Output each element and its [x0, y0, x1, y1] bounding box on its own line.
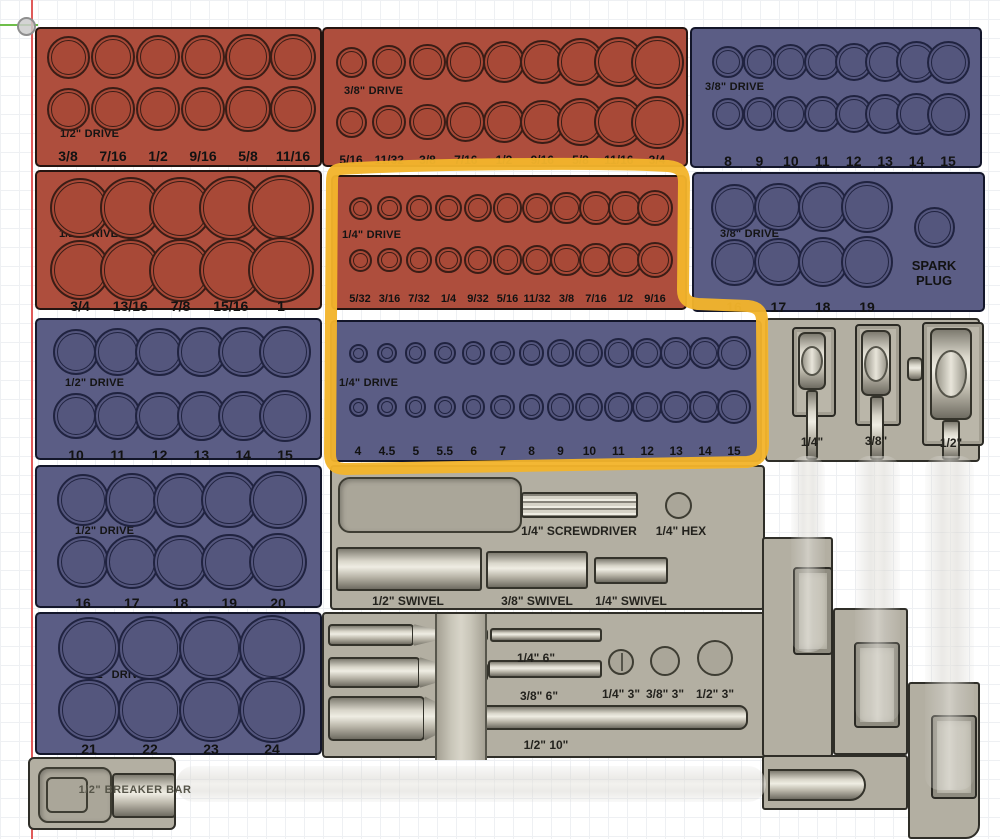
panel-three-eighth-drive-metric[interactable]: 3/8" DRIVE89101112131415 [690, 27, 982, 168]
socket-size-label: 5/16 [497, 293, 518, 305]
socket-hole [239, 615, 305, 681]
drive-size-label: 1/4" DRIVE [339, 377, 398, 389]
socket-hole [153, 535, 208, 590]
socket-hole [259, 390, 311, 442]
socket-size-label: 4 [355, 444, 362, 458]
socket-size-label: 20 [270, 595, 286, 611]
socket-size-label: 5.5 [436, 444, 453, 458]
socket-size-label: 1/2 [496, 153, 513, 167]
breaker-bar-ghost-shaft [176, 766, 766, 802]
socket-hole [349, 249, 372, 272]
socket-hole [841, 236, 893, 288]
socket-hole [717, 336, 751, 370]
panel-half-drive-sae-small[interactable]: 1/2" DRIVE3/87/161/29/165/811/16 [35, 27, 322, 167]
ratchet-handle-ghost [925, 456, 974, 790]
socket-hole [519, 340, 545, 366]
extension-rod [490, 628, 602, 642]
socket-size-label: 1 [277, 298, 285, 314]
socket-hole [462, 341, 486, 365]
extension-label: 3/8" 6" [520, 689, 558, 703]
socket-hole [550, 244, 582, 276]
socket-hole [409, 104, 446, 141]
socket-size-label: 13 [669, 444, 682, 458]
socket-size-label: 3/8 [559, 293, 574, 305]
drive-size-label: 3/8" DRIVE [344, 85, 403, 97]
socket-hole [464, 194, 492, 222]
ratchet-stem [806, 390, 818, 460]
socket-size-label: 23 [203, 741, 219, 757]
half-extension[interactable] [328, 696, 425, 741]
socket-hole [270, 86, 316, 132]
socket-hole [522, 193, 553, 224]
socket-size-label: 5/16 [339, 153, 362, 167]
drive-stub [907, 357, 923, 381]
socket-size-label: 18 [173, 595, 189, 611]
socket-size-label: 5/32 [349, 293, 370, 305]
socket-hole [118, 678, 181, 741]
socket-hole [47, 36, 90, 79]
socket-size-label: 14 [235, 447, 251, 463]
ratchet-tray[interactable]: 1/4" 3/8" 1/2" [765, 318, 980, 462]
socket-hole [406, 247, 432, 273]
socket-size-label: 11/32 [375, 153, 404, 167]
socket-hole [105, 535, 159, 589]
short-extension-label: 3/8" 3" [646, 687, 684, 701]
socket-hole [248, 237, 314, 303]
socket-size-label: 1/2 [148, 148, 167, 164]
empty-pocket [338, 477, 522, 533]
socket-hole [372, 45, 406, 79]
socket-hole [225, 86, 270, 131]
socket-hole [406, 195, 432, 221]
socket-hole [483, 41, 525, 83]
socket-hole [405, 342, 426, 363]
short-extension-label: 1/4" 3" [602, 687, 640, 701]
socket-size-label: 19 [221, 595, 237, 611]
socket-hole [248, 175, 314, 241]
short-extension-hole [697, 640, 733, 676]
socket-size-label: 7/16 [585, 293, 606, 305]
swivel-label: 1/2" SWIVEL [372, 594, 444, 608]
panel-half-drive-metric-small[interactable]: 1/2" DRIVE101112131415 [35, 318, 322, 460]
socket-hole [349, 398, 368, 417]
socket-hole [434, 396, 456, 418]
socket-hole [754, 183, 803, 232]
hex-bit-hole [665, 492, 692, 519]
drive-size-label: 3/8" DRIVE [705, 81, 764, 93]
ratchet-label: 1/4" [801, 435, 823, 449]
ratchet-handle-ghost [855, 456, 900, 722]
socket-size-label: 14 [909, 153, 925, 169]
socket-size-label: 11 [110, 447, 125, 463]
socket-hole [522, 245, 553, 276]
socket-hole [637, 190, 673, 226]
socket-size-label: 9/16 [531, 153, 554, 167]
socket-hole [446, 42, 485, 81]
socket-size-label: 12 [846, 153, 862, 169]
socket-hole [490, 395, 515, 420]
socket-size-label: 7/32 [408, 293, 429, 305]
extension-rod [476, 705, 748, 730]
socket-hole [660, 391, 692, 423]
short-extension-label: 1/2" 3" [696, 687, 734, 701]
socket-hole [259, 326, 311, 378]
socket-size-label: 11/16 [604, 153, 633, 167]
socket-hole [464, 246, 492, 274]
breaker-end-block[interactable] [762, 755, 908, 810]
socket-size-label: 16 [75, 595, 91, 611]
socket-hole [490, 341, 515, 366]
screwdriver-label: 1/4" SCREWDRIVER [521, 524, 637, 538]
quarter-extension[interactable] [328, 624, 414, 646]
socket-hole [94, 392, 141, 439]
socket-size-label: 8 [528, 444, 535, 458]
short-extension-hole [608, 649, 634, 675]
socket-hole [435, 195, 462, 222]
half-swivel-tool[interactable] [336, 547, 482, 591]
screwdriver-tool[interactable] [521, 492, 638, 518]
socket-hole [47, 88, 90, 131]
socket-size-label: 11 [612, 444, 625, 458]
socket-size-label: 7/16 [99, 148, 126, 164]
socket-hole [57, 536, 109, 588]
socket-size-label: 1/2 [618, 293, 633, 305]
socket-size-label: 21 [81, 741, 97, 757]
socket-hole [631, 36, 684, 89]
socket-hole [637, 242, 673, 278]
socket-hole [53, 329, 99, 375]
origin-marker [17, 17, 36, 36]
socket-hole [58, 679, 120, 741]
socket-size-label: 3/16 [379, 293, 400, 305]
drive-size-label: 1/2" DRIVE [65, 377, 124, 389]
swivel-label: 3/8" SWIVEL [501, 594, 573, 608]
socket-size-label: 11 [815, 153, 830, 169]
socket-hole [462, 395, 486, 419]
socket-hole [841, 181, 893, 233]
socket-size-label: 10 [583, 444, 596, 458]
socket-size-label: 12 [641, 444, 654, 458]
y-axis-line [31, 0, 33, 839]
socket-hole [434, 342, 456, 364]
small-tools-tray[interactable]: 1/4" SCREWDRIVER 1/4" HEX 1/2" SWIVEL 3/… [330, 465, 765, 610]
quarter-swivel-tool[interactable] [594, 557, 668, 584]
breaker-bar-end [768, 769, 866, 801]
socket-hole [53, 393, 99, 439]
socket-hole [181, 35, 226, 80]
spark-plug-label: SPARK [912, 258, 957, 273]
extension-label: 1/4" 6" [517, 651, 555, 665]
socket-size-label: 11/32 [524, 293, 551, 305]
socket-hole [712, 98, 744, 130]
panel-half-drive-metric-mid[interactable]: 1/2" DRIVE1617181920 [35, 465, 322, 608]
panel-half-drive-metric-large[interactable]: 1/2" DRIVE21222324 [35, 612, 322, 755]
socket-hole [405, 396, 426, 417]
socket-hole [336, 107, 367, 138]
socket-hole [136, 35, 180, 79]
socket-hole [349, 344, 368, 363]
socket-size-label: 9/16 [644, 293, 665, 305]
socket-hole [136, 87, 180, 131]
socket-hole [711, 184, 758, 231]
socket-hole [91, 35, 135, 79]
socket-hole [377, 343, 397, 363]
socket-size-label: 3/4 [649, 153, 666, 167]
three-eighth-swivel-tool[interactable] [486, 551, 588, 589]
socket-size-label: 11/16 [276, 148, 310, 164]
socket-hole [377, 248, 401, 272]
socket-size-label: 17 [771, 299, 787, 315]
socket-hole [377, 196, 401, 220]
socket-size-label: 8 [724, 153, 732, 169]
socket-hole [435, 247, 462, 274]
socket-hole [94, 328, 141, 375]
socket-size-label: 3/8 [419, 153, 436, 167]
panel-quarter-drive-metric[interactable]: 1/4" DRIVE44.555.56789101112131415 [330, 320, 762, 462]
socket-size-label: 9 [557, 444, 564, 458]
ratchet-head-ring [801, 346, 823, 376]
socket-size-label: 13 [194, 447, 210, 463]
short-extension-hole [650, 646, 680, 676]
socket-hole [181, 87, 226, 132]
socket-size-label: 17 [124, 595, 140, 611]
socket-hole [372, 105, 406, 139]
socket-hole [632, 392, 663, 423]
socket-size-label: 10 [783, 153, 799, 169]
three-eighth-extension[interactable] [328, 657, 420, 688]
extension-tray[interactable]: 1/4" 6" 3/8" 6" 1/2" 10" 1/4" 3" 3/8" 3"… [322, 612, 768, 758]
socket-size-label: 10 [68, 447, 84, 463]
socket-hole [927, 41, 970, 84]
socket-size-label: 18 [815, 299, 831, 315]
socket-size-label: 16 [726, 299, 742, 315]
socket-hole [179, 616, 244, 681]
socket-hole [547, 393, 574, 420]
socket-size-label: 24 [264, 741, 280, 757]
extension-label: 1/2" 10" [524, 738, 569, 752]
socket-hole [711, 239, 758, 286]
socket-size-label: 9/16 [189, 148, 216, 164]
socket-size-label: 19 [859, 299, 875, 315]
socket-hole [483, 101, 525, 143]
spark-plug-label: PLUG [916, 273, 952, 288]
socket-hole [604, 338, 633, 367]
socket-size-label: 3/8 [58, 148, 77, 164]
socket-size-label: 15 [727, 444, 740, 458]
socket-size-label: 5 [413, 444, 420, 458]
socket-hole [225, 34, 270, 79]
socket-hole [717, 390, 751, 424]
swivel-label: 1/4" SWIVEL [595, 594, 667, 608]
socket-hole [105, 473, 159, 527]
socket-size-label: 4.5 [379, 444, 396, 458]
socket-size-label: 3/4 [70, 298, 89, 314]
socket-hole [754, 238, 803, 287]
ratchet-head-ring [864, 346, 888, 382]
panel-half-drive-sae-large[interactable]: 1/2" DRIVE3/413/167/815/161 [35, 170, 322, 310]
socket-size-label: 13/16 [113, 298, 148, 314]
socket-hole [179, 678, 244, 743]
socket-size-label: 6 [470, 444, 477, 458]
ratchet-label: 1/2" [940, 436, 962, 450]
socket-hole [743, 45, 777, 79]
socket-hole [575, 393, 603, 421]
socket-hole [349, 197, 372, 220]
ratchet-stem [870, 396, 884, 460]
panel-three-eighth-drive-sae[interactable]: 3/8" DRIVE5/1611/323/87/161/29/165/811/1… [322, 27, 688, 167]
socket-size-label: 15 [277, 447, 293, 463]
socket-size-label: 5/8 [238, 148, 257, 164]
socket-size-label: 13 [877, 153, 893, 169]
panel-quarter-drive-sae[interactable]: 1/4" DRIVE5/323/167/321/49/325/1611/323/… [331, 175, 687, 310]
breaker-bar-label: 1/2" BREAKER BAR [79, 784, 192, 796]
socket-hole [631, 96, 684, 149]
socket-hole [550, 192, 582, 224]
socket-hole [336, 47, 367, 78]
socket-hole [446, 102, 485, 141]
panel-three-eighth-drive-large-metric[interactable]: 3/8" DRIVE16171819SPARKPLUG [692, 172, 985, 312]
socket-hole [604, 392, 633, 421]
tray-ridge [435, 614, 487, 760]
socket-hole [519, 394, 545, 420]
socket-size-label: 7/16 [454, 153, 477, 167]
socket-size-label: 15/16 [213, 298, 248, 314]
socket-size-label: 7 [499, 444, 506, 458]
socket-size-label: 9 [756, 153, 764, 169]
drive-size-label: 1/4" DRIVE [342, 229, 401, 241]
socket-size-label: 22 [142, 741, 158, 757]
socket-size-label: 9/32 [467, 293, 488, 305]
socket-hole [493, 245, 523, 275]
hex-label: 1/4" HEX [656, 524, 706, 538]
cad-viewport[interactable]: 1/2" DRIVE3/87/161/29/165/811/163/8" DRI… [0, 0, 1000, 839]
socket-hole [249, 533, 307, 591]
socket-hole [58, 617, 120, 679]
socket-hole [153, 473, 208, 528]
socket-hole [270, 34, 316, 80]
ratchet-handle-ghost [791, 456, 825, 652]
socket-hole [493, 193, 523, 223]
socket-size-label: 1/4 [441, 293, 456, 305]
socket-hole [239, 677, 305, 743]
socket-size-label: 12 [152, 447, 168, 463]
socket-hole [547, 339, 574, 366]
socket-size-label: 14 [698, 444, 711, 458]
socket-hole [249, 471, 307, 529]
socket-hole [632, 338, 663, 369]
ratchet-label: 3/8" [865, 434, 887, 448]
hole-split-line [621, 653, 623, 671]
socket-hole [91, 87, 135, 131]
socket-hole [409, 44, 446, 81]
ratchet-head-ring [935, 350, 967, 398]
socket-size-label: 5/8 [572, 153, 589, 167]
spark-plug-hole [914, 207, 955, 248]
socket-hole [712, 46, 744, 78]
socket-size-label: 15 [940, 153, 956, 169]
socket-hole [743, 97, 777, 131]
socket-hole [118, 616, 181, 679]
socket-hole [660, 337, 692, 369]
socket-size-label: 7/8 [171, 298, 190, 314]
socket-hole [377, 397, 397, 417]
socket-hole [927, 93, 970, 136]
socket-hole [57, 474, 109, 526]
socket-hole [575, 339, 603, 367]
